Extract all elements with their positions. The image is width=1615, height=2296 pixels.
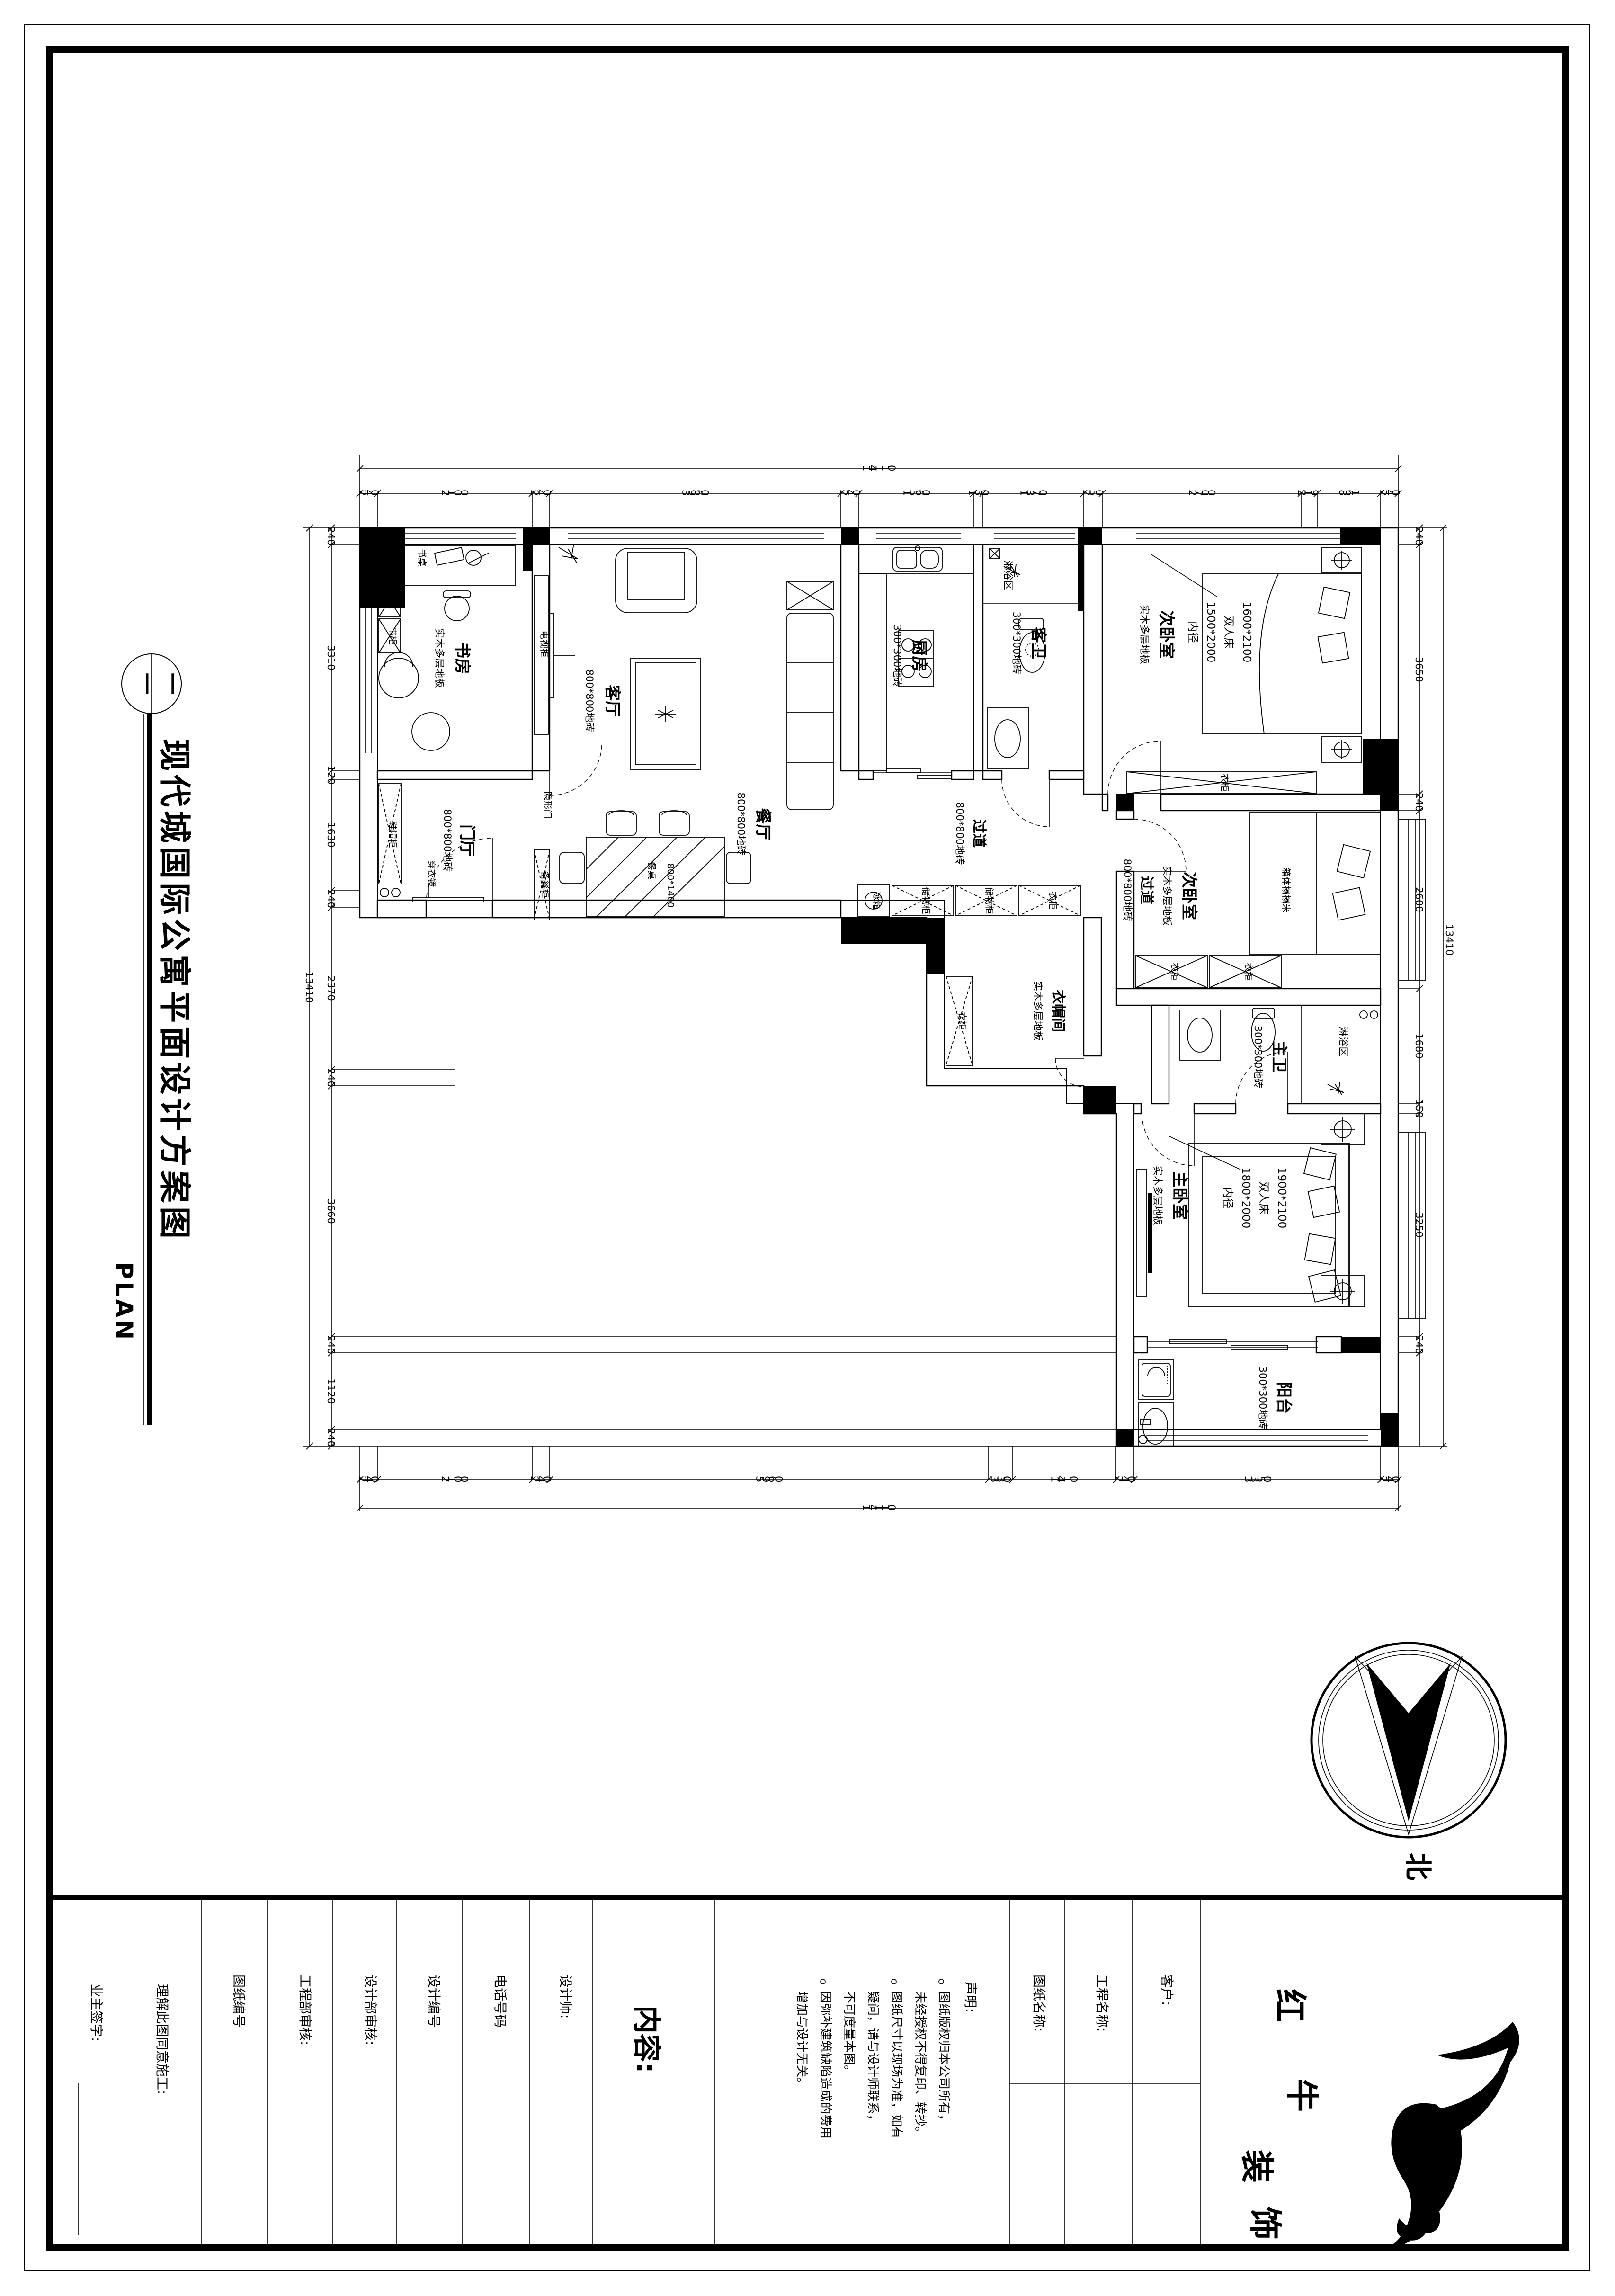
dim: 240 <box>325 1428 337 1447</box>
dim: 2370 <box>325 975 337 1001</box>
brand-char-4: 饰 <box>1246 2207 1285 2240</box>
dim: 130 <box>966 490 990 496</box>
room-label-dining: 餐厅 <box>753 808 772 840</box>
bubble-figure-number-right: 一 <box>159 673 185 695</box>
statement-title: 声明: <box>963 1982 978 2012</box>
dim: 3350 <box>1242 1476 1273 1482</box>
room-label-corridor-2: 过道 <box>1138 876 1155 904</box>
dim: 240 <box>838 490 862 496</box>
dim: 1680 <box>1413 1033 1425 1058</box>
room-floor-master-bath: 300*300地砖 <box>1252 1026 1264 1089</box>
dim: 240 <box>1377 1476 1401 1482</box>
room-label-master-bed: 主卧室 <box>1170 1171 1189 1220</box>
dim: 861 <box>1337 490 1361 496</box>
bed2-spec-line4: 内径 <box>1187 621 1199 643</box>
room-floor-guest-bath: 300*300地砖 <box>1011 612 1022 675</box>
dim: 240 <box>529 490 553 496</box>
room-label-corridor-1: 过道 <box>971 819 987 848</box>
bed2-spec-line2: 双人床 <box>1222 616 1235 649</box>
dim: 1630 <box>325 822 337 847</box>
field-phone: 电话号码 <box>492 1974 508 2028</box>
north-arrow: 北 <box>1312 1643 1506 1880</box>
label-bookcase-2: 书柜 <box>387 591 398 609</box>
room-label-balcony: 阳台 <box>1274 1382 1293 1414</box>
bed1-spec-line1: 1900*2100 <box>1276 1168 1288 1229</box>
room-label-cloakroom: 衣帽间 <box>1050 990 1066 1032</box>
label-wardrobe-1: 衣柜 <box>1047 892 1058 910</box>
bull-logo-icon <box>1390 2022 1519 2247</box>
dim: 330 <box>989 1476 1013 1482</box>
page-title-en: PLAN <box>110 1262 138 1342</box>
dim: 240 <box>325 527 337 545</box>
dim: 3660 <box>325 1198 337 1224</box>
dim: 150 <box>1413 1099 1425 1118</box>
dim: 240 <box>1413 527 1425 545</box>
page-title: 现代城国际公寓平面设计方案图 <box>155 739 193 1242</box>
dim: 1120 <box>325 1378 337 1403</box>
statement-line-5: 不可度量本图。 <box>842 1991 856 2077</box>
statement-line-3: 图纸尺寸以现场为准，如有 <box>889 1991 903 2139</box>
field-design-review: 设计部审核: <box>363 1974 378 2045</box>
label-dining-table: 餐桌 <box>646 861 657 879</box>
bubble-figure-number-left: 一 <box>134 673 159 695</box>
room-floor-cloakroom: 实木多层地板 <box>1032 981 1044 1041</box>
room-floor-foyer: 800*800地砖 <box>442 809 453 872</box>
brand-logo: 红 牛 装 饰 <box>1237 1989 1519 2247</box>
bed1-spec-line4: 内径 <box>1222 1187 1234 1209</box>
room-floor-corridor-1: 800*800地砖 <box>954 802 965 865</box>
exterior-walls <box>360 528 1398 1446</box>
field-designer: 设计师: <box>558 1974 573 2019</box>
room-floor-balcony: 300*300地砖 <box>1257 1367 1268 1429</box>
label-bookcase-3: 书柜 <box>387 627 398 645</box>
dim: 240 <box>325 1068 337 1087</box>
room-floor-kitchen: 300*300地砖 <box>892 625 903 688</box>
label-wardrobe-5: 衣柜 <box>1243 963 1253 981</box>
label-wardrobe-3: 衣柜 <box>1219 774 1230 792</box>
dim: 2100 <box>439 1476 470 1482</box>
statement-line-6: 因弥补建筑缺陷造成的费用 <box>818 1991 832 2139</box>
dim: 1560 <box>901 490 931 496</box>
field-content: 内容: <box>630 2005 663 2073</box>
field-eng-review: 工程部审核: <box>297 1974 313 2045</box>
room-floor-corridor-2: 800*800地砖 <box>1122 859 1133 922</box>
statement-line-4: 疑问，请与设计师联系， <box>865 1991 880 2126</box>
dim: 240 <box>357 1476 381 1482</box>
dim: 240 <box>325 889 337 908</box>
dim-left-overall: 13410 <box>303 972 315 1003</box>
label-desk: 书桌 <box>417 549 427 567</box>
dim-bottom-overall: 14110 <box>861 1504 898 1510</box>
brand-char-3: 装 <box>1237 2150 1276 2183</box>
room-floor-bedroom2b: 实木多层地板 <box>1161 866 1173 926</box>
field-owner-sign: 业主签字: <box>89 1984 104 2041</box>
bed2-spec-line1: 1600*2100 <box>1240 602 1253 663</box>
field-design-no: 设计编号 <box>426 1974 442 2028</box>
dim: 2700 <box>1187 490 1217 496</box>
dim: 2100 <box>439 490 470 496</box>
brand-char-1: 红 <box>1270 1989 1309 2022</box>
dim: 240 <box>529 1476 553 1482</box>
drawing-sheet: 一 一 现代城国际公寓平面设计方案图 PLAN 14110 240 2100 2… <box>0 0 1615 2296</box>
room-label-foyer: 门厅 <box>457 824 476 857</box>
room-label-kitchen: 厨房 <box>910 640 928 672</box>
dim: 3960 <box>680 490 710 496</box>
label-wardrobe-2: 衣柜 <box>957 1012 967 1030</box>
dim: 250 <box>1081 490 1105 496</box>
room-floor-study: 实木多层地板 <box>434 628 445 688</box>
room-label-bedroom2a: 次卧室 <box>1157 610 1176 659</box>
bed2-spec-line3: 1500*2000 <box>1205 602 1217 663</box>
room-floor-living: 800*800地砖 <box>584 670 595 733</box>
label-wardrobe-4: 衣柜 <box>1169 963 1179 981</box>
dim: 3310 <box>325 645 337 670</box>
bed1-spec-line2: 双人床 <box>1258 1182 1270 1215</box>
north-label: 北 <box>1402 1853 1434 1880</box>
room-floor-dining: 800*800地砖 <box>735 793 747 856</box>
drawing-title-block: 一 一 现代城国际公寓平面设计方案图 PLAN <box>110 654 193 1425</box>
dim: 219 <box>1296 490 1320 496</box>
label-shower-zone-master: 淋浴区 <box>1338 1027 1349 1057</box>
label-storage-1: 储物柜 <box>920 887 931 914</box>
label-bookcase-1: 书柜 <box>387 555 398 573</box>
field-client: 客户: <box>1159 1974 1175 2005</box>
room-label-master-bath: 主卫 <box>1269 1041 1288 1073</box>
room-label-guest-bath: 客卫 <box>1029 627 1048 659</box>
label-tv-cabinet: 电视柜 <box>539 630 549 657</box>
field-agree-construct: 理解此图同意施工: <box>154 1984 170 2094</box>
floor-plan-drawing: 一 一 现代城国际公寓平面设计方案图 PLAN 14110 240 2100 2… <box>0 0 1615 2296</box>
label-fridge: 冰箱 <box>871 892 882 910</box>
field-drawing-name: 图纸名称: <box>1031 1974 1047 2032</box>
dim: 1410 <box>1049 1476 1079 1482</box>
label-sideboard: 备餐柜 <box>540 871 550 898</box>
room-label-living: 客厅 <box>603 685 622 717</box>
label-hidden-door: 隐形门 <box>542 791 553 818</box>
dimension-chain-bottom: 14110 240 2100 240 5960 330 1410 240 335… <box>357 1446 1401 1511</box>
room-floor-master-bed: 实木多层地板 <box>1152 1166 1163 1225</box>
field-project-name: 工程名称: <box>1094 1974 1110 2032</box>
title-block: 业主签字: 理解此图同意施工: 图纸编号 工程部审核: 设计部审核: 设计编号 … <box>49 1895 1565 2247</box>
dim: 3250 <box>1413 1212 1425 1237</box>
dim: 120 <box>325 766 337 785</box>
bed1-spec-line3: 1800*2000 <box>1240 1168 1252 1229</box>
field-drawing-no: 图纸编号 <box>231 1974 247 2028</box>
dim-top-overall: 14110 <box>861 465 898 471</box>
dim: 3650 <box>1413 657 1425 682</box>
dim: 240 <box>357 490 381 496</box>
dimension-chain-top: 14110 240 2100 240 3960 240 1560 130 137… <box>357 455 1401 528</box>
dim-right-overall: 13410 <box>1444 924 1455 956</box>
dim: 5960 <box>754 1476 784 1482</box>
room-label-bedroom2b: 次卧室 <box>1179 872 1198 920</box>
room-label-study: 书房 <box>453 642 472 674</box>
label-dining-table-size: 800*1400 <box>665 863 676 908</box>
dim: 240 <box>1377 490 1401 496</box>
dim: 240 <box>1113 1476 1137 1482</box>
label-storage-2: 储物柜 <box>984 887 994 914</box>
statement-line-2: 未经授权不得复印、转抄。 <box>913 1991 927 2139</box>
label-shoe-cabinet: 鞋帽柜 <box>387 821 398 848</box>
label-tatami: 箱体榻榻米 <box>1281 867 1291 912</box>
label-shower-zone-guest: 淋浴区 <box>1002 561 1014 590</box>
brand-char-2: 牛 <box>1282 2079 1321 2112</box>
statement-line-7: 增加与设计无关。 <box>794 1991 809 2090</box>
dim: 240 <box>1413 793 1425 812</box>
statement-line-1: 图纸版权归本公司所有， <box>937 1991 951 2126</box>
dim: 240 <box>1413 1335 1425 1354</box>
room-floor-bedroom2a: 实木多层地板 <box>1139 605 1150 664</box>
dim: 240 <box>325 1335 337 1354</box>
dimension-chain-right: 240 3650 240 2600 1680 150 3250 240 1341… <box>1398 525 1455 1449</box>
dim: 1370 <box>1018 490 1048 496</box>
dim: 2600 <box>1413 887 1425 912</box>
label-mirror: 穿衣镜 <box>426 860 437 887</box>
